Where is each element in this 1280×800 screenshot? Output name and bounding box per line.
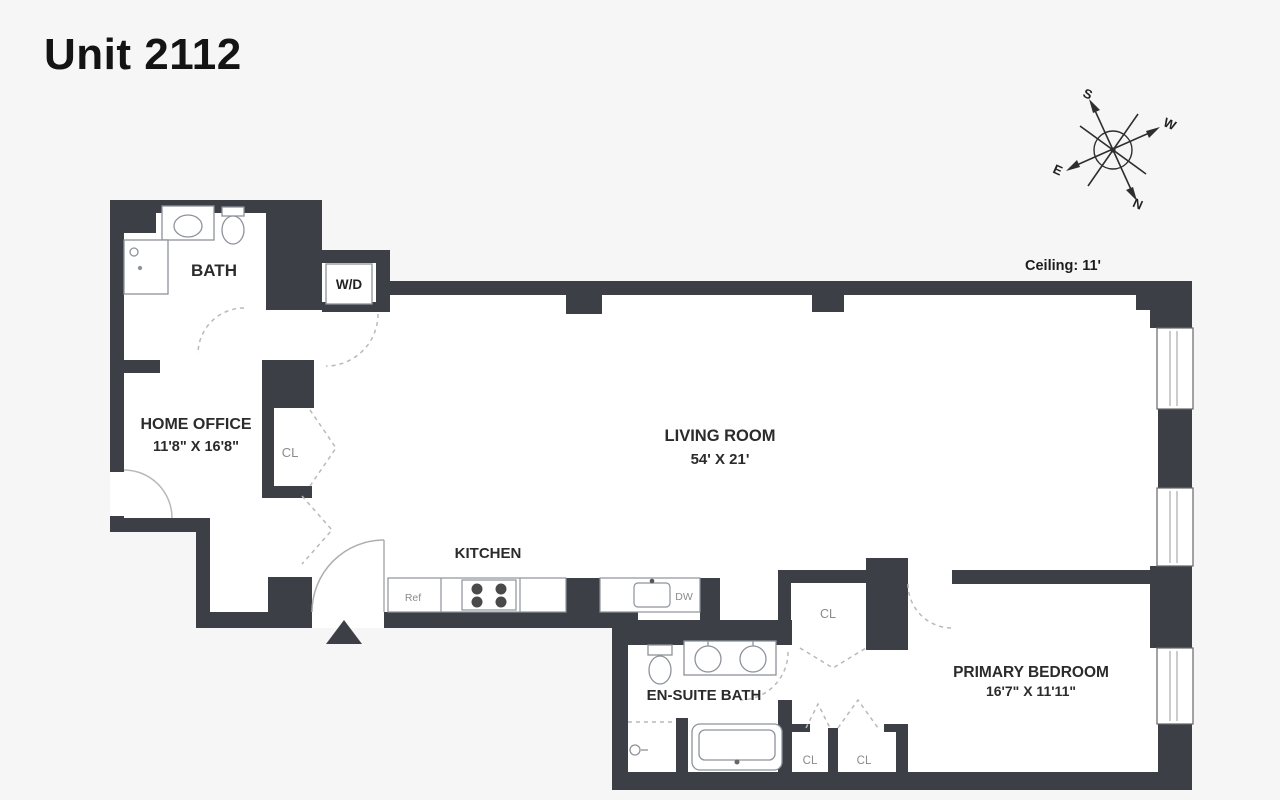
closet-label-1: CL [803, 755, 818, 767]
dishwasher-label: DW [675, 591, 693, 603]
toilet-bowl [222, 216, 244, 244]
closet-label-bedroom: CL [820, 607, 836, 621]
compass-rose: S W E N [1051, 85, 1179, 212]
kitchen-label: KITCHEN [455, 545, 522, 562]
window-living-2 [1157, 488, 1193, 566]
toilet-tank [222, 207, 244, 216]
window-bedroom [1157, 648, 1193, 724]
kitchen-sink [634, 583, 670, 607]
primary-bedroom-label: PRIMARY BEDROOM [953, 664, 1109, 681]
bath-shower [124, 240, 168, 294]
ensuite-sink-2 [740, 646, 766, 672]
primary-bedroom-dimensions: 16'7" X 11'11" [986, 683, 1076, 699]
ensuite-bath-label: EN-SUITE BATH [647, 687, 762, 704]
ceiling-note: Ceiling: 11' [1025, 258, 1101, 274]
kitchen-fixtures [388, 578, 700, 612]
living-room-label: LIVING ROOM [665, 427, 776, 445]
home-office-dimensions: 11'8" X 16'8" [153, 439, 239, 455]
shower-head-icon [130, 248, 138, 256]
compass-e: E [1051, 161, 1065, 178]
compass-w: W [1161, 115, 1179, 134]
bath-label: BATH [191, 261, 237, 280]
refrigerator-label: Ref [405, 592, 421, 604]
washer-dryer-label: W/D [336, 277, 362, 292]
compass-s: S [1081, 85, 1095, 102]
bath-sink [174, 215, 202, 237]
living-room-dimensions: 54' X 21' [691, 451, 750, 468]
floorplan: S W E N Ceiling: 11' BATH W/D HOME OFFIC… [0, 0, 1280, 800]
windows [1157, 328, 1193, 724]
ensuite-sink-1 [695, 646, 721, 672]
closet-label-2: CL [857, 755, 872, 767]
closet-label-office: CL [282, 445, 299, 460]
compass-n: N [1130, 195, 1145, 213]
ensuite-toilet-tank [648, 645, 672, 655]
home-office-label: HOME OFFICE [140, 416, 251, 433]
ensuite-shower-head-icon [630, 745, 640, 755]
window-living-1 [1157, 328, 1193, 409]
ensuite-toilet-bowl [649, 656, 671, 684]
tub-faucet-icon [735, 760, 740, 765]
faucet-icon [650, 579, 655, 584]
bathtub-inner [699, 730, 775, 760]
range-icon [462, 580, 516, 610]
